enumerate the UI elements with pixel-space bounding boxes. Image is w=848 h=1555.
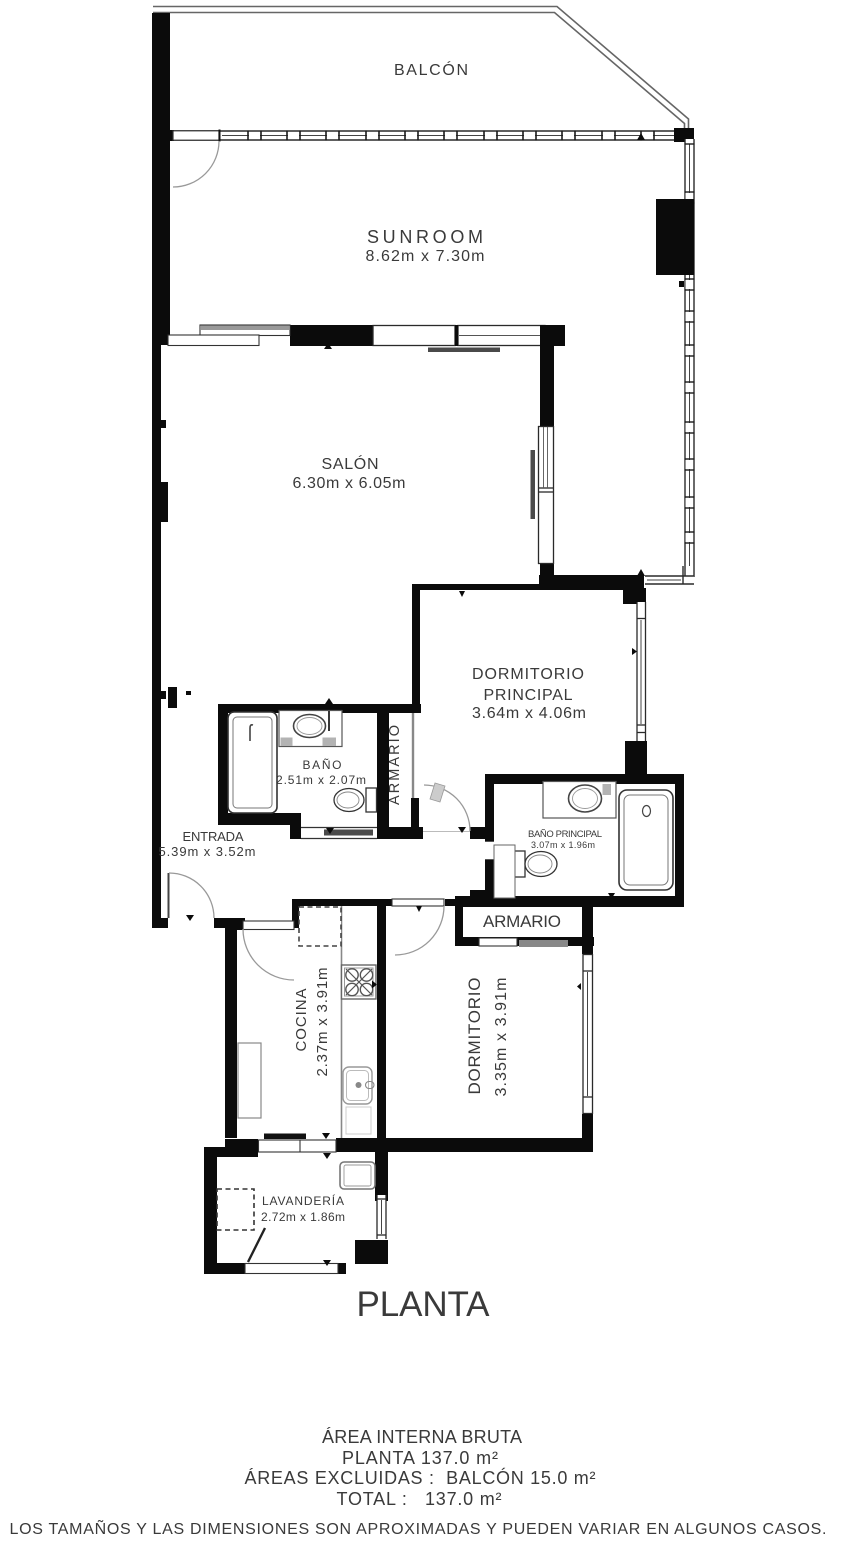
svg-text:SALÓN: SALÓN	[322, 454, 379, 473]
svg-text:BAÑO: BAÑO	[303, 758, 342, 772]
svg-text:ÁREA INTERNA BRUTA: ÁREA INTERNA BRUTA	[322, 1427, 522, 1447]
svg-text:DORMITORIO: DORMITORIO	[465, 978, 484, 1095]
svg-text:PLANTA 137.0 m²: PLANTA 137.0 m²	[342, 1448, 498, 1468]
svg-text:5.39m x 3.52m: 5.39m x 3.52m	[159, 844, 256, 859]
svg-text:6.30m x 6.05m: 6.30m x 6.05m	[293, 475, 406, 492]
svg-text:ENTRADA: ENTRADA	[183, 829, 244, 844]
svg-text:COCINA: COCINA	[293, 989, 310, 1052]
svg-text:ÁREAS EXCLUIDAS : BALCÓN 15.0: ÁREAS EXCLUIDAS : BALCÓN 15.0 m²	[245, 1467, 596, 1488]
svg-text:2.37m x 3.91m: 2.37m x 3.91m	[314, 968, 331, 1077]
svg-text:BAÑO PRINCIPAL: BAÑO PRINCIPAL	[528, 829, 602, 840]
svg-text:LOS TAMAÑOS Y LAS DIMENSIONES: LOS TAMAÑOS Y LAS DIMENSIONES SON APROXI…	[10, 1518, 827, 1538]
svg-text:2.51m x 2.07m: 2.51m x 2.07m	[276, 773, 366, 787]
svg-text:2.72m x 1.86m: 2.72m x 1.86m	[261, 1210, 345, 1224]
svg-text:3.64m x 4.06m: 3.64m x 4.06m	[472, 705, 586, 722]
svg-text:8.62m x 7.30m: 8.62m x 7.30m	[366, 248, 485, 265]
svg-text:3.07m x 1.96m: 3.07m x 1.96m	[531, 840, 595, 850]
svg-text:PRINCIPAL: PRINCIPAL	[484, 687, 573, 704]
svg-text:ARMARIO: ARMARIO	[483, 912, 561, 931]
svg-text:DORMITORIO: DORMITORIO	[472, 666, 584, 683]
svg-text:TOTAL : 137.0 m²: TOTAL : 137.0 m²	[337, 1489, 502, 1509]
svg-text:PLANTA: PLANTA	[357, 1285, 491, 1324]
svg-text:LAVANDERÍA: LAVANDERÍA	[262, 1193, 344, 1208]
svg-text:ARMARIO: ARMARIO	[387, 725, 403, 805]
svg-text:3.35m x 3.91m: 3.35m x 3.91m	[493, 978, 510, 1097]
